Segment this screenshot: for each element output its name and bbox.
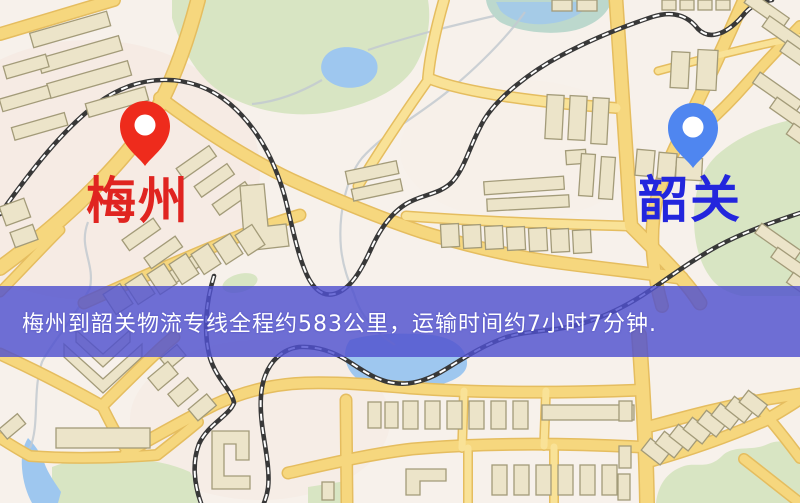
route-info-text: 梅州到韶关物流专线全程约583公里，运输时间约7小时7分钟. (0, 306, 657, 338)
origin-city-label: 梅州 (86, 176, 190, 226)
map-canvas (0, 0, 800, 503)
destination-city-label: 韶关 (638, 175, 742, 225)
destination-location-pin-icon (666, 101, 720, 169)
map-screenshot: 梅州 韶关 梅州到韶关物流专线全程约583公里，运输时间约7小时7分钟. (0, 0, 800, 503)
origin-location-pin-icon (118, 99, 172, 167)
route-info-banner: 梅州到韶关物流专线全程约583公里，运输时间约7小时7分钟. (0, 286, 800, 357)
